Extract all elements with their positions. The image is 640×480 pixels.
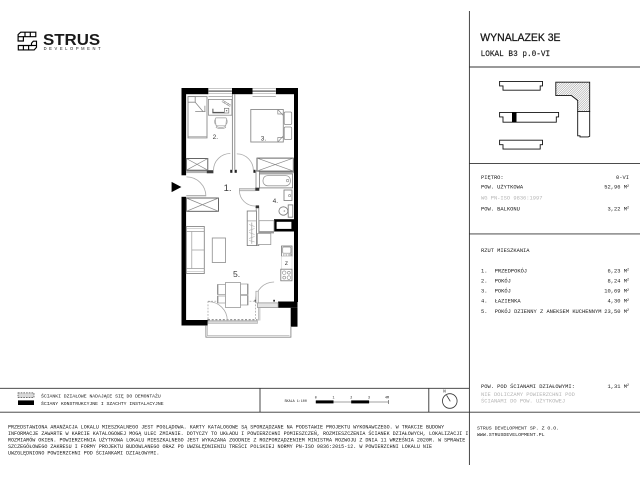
svg-text:ŚCIANKI DZIAŁOWE NADAJĄCE SIĘ: ŚCIANKI DZIAŁOWE NADAJĄCE SIĘ DO DEMONTA… (41, 392, 161, 399)
svg-text:POW. POD ŚCIANAMI DZIAŁOWYMI:: POW. POD ŚCIANAMI DZIAŁOWYMI: (481, 383, 575, 390)
svg-text:2.: 2. (213, 134, 219, 141)
svg-text:3,22 M2: 3,22 M2 (608, 207, 629, 213)
svg-text:ŚCIANAMI DO POW. UŻYTKOWEJ: ŚCIANAMI DO POW. UŻYTKOWEJ (481, 397, 565, 404)
svg-text:3.: 3. (481, 289, 487, 295)
svg-text:1: 1 (333, 396, 335, 400)
svg-text:5.: 5. (233, 269, 240, 279)
svg-text:WWW.STRUSDEVELOPMENT.PL: WWW.STRUSDEVELOPMENT.PL (477, 432, 545, 438)
svg-text:ŁAZIENKA: ŁAZIENKA (495, 299, 522, 305)
svg-text:LOKAL B3 p.0-VI: LOKAL B3 p.0-VI (481, 51, 551, 59)
svg-text:WYNALAZEK 3E: WYNALAZEK 3E (480, 32, 560, 44)
svg-text:4,30 M2: 4,30 M2 (608, 299, 629, 305)
svg-text:NIE DOLICZAMY POWIERZCHNI POD: NIE DOLICZAMY POWIERZCHNI POD (481, 392, 575, 398)
svg-text:POW. BALKONU: POW. BALKONU (481, 207, 520, 213)
svg-text:PRZEDPOKÓJ: PRZEDPOKÓJ (495, 267, 527, 274)
svg-text:3.: 3. (261, 135, 267, 142)
svg-text:ROZMIARÓW OKIEN. POWIERZCHNIA: ROZMIARÓW OKIEN. POWIERZCHNIA UŻYTKOWA L… (8, 437, 465, 444)
svg-text:UWZGLĘDNIONO POWIERZCHNI POD Ś: UWZGLĘDNIONO POWIERZCHNI POD ŚCIANKAMI D… (8, 450, 159, 457)
svg-text:SZCZEGÓŁOWEGO ZAKRESU I FORMY: SZCZEGÓŁOWEGO ZAKRESU I FORMY PROJEKTU B… (8, 443, 432, 450)
svg-text:STRUS DEVELOPMENT SP. Z O.O.: STRUS DEVELOPMENT SP. Z O.O. (477, 426, 559, 432)
svg-text:N: N (443, 390, 446, 394)
svg-text:4.: 4. (481, 299, 487, 305)
svg-text:POW. UŻYTKOWA: POW. UŻYTKOWA (481, 184, 524, 191)
svg-text:0-VI: 0-VI (616, 175, 629, 181)
svg-text:POKÓJ DZIENNY Z ANEKSEM KUCHEN: POKÓJ DZIENNY Z ANEKSEM KUCHENNYM (495, 308, 602, 315)
svg-text:4.: 4. (273, 198, 279, 205)
svg-text:1.: 1. (224, 183, 232, 194)
svg-text:5.: 5. (481, 309, 487, 315)
svg-text:POKÓJ: POKÓJ (495, 278, 511, 285)
svg-text:1,31 M2: 1,31 M2 (608, 384, 629, 390)
svg-text:4M: 4M (385, 396, 389, 400)
svg-text:0: 0 (315, 396, 317, 400)
svg-text:23,50 M2: 23,50 M2 (604, 309, 629, 315)
svg-text:1.: 1. (481, 268, 487, 274)
svg-text:SKALA 1:100: SKALA 1:100 (285, 400, 307, 404)
svg-text:POKÓJ: POKÓJ (495, 288, 511, 295)
svg-text:10,69 M2: 10,69 M2 (604, 289, 629, 295)
svg-text:2: 2 (350, 396, 352, 400)
svg-text:52,96 M2: 52,96 M2 (604, 185, 629, 191)
svg-text:3: 3 (368, 396, 370, 400)
svg-text:2.: 2. (481, 279, 487, 285)
svg-text:WG PN-ISO 9836:1997: WG PN-ISO 9836:1997 (481, 195, 542, 201)
svg-text:RZUT MIESZKANIA: RZUT MIESZKANIA (481, 248, 530, 254)
svg-text:6,23 M2: 6,23 M2 (608, 268, 629, 274)
svg-text:INFORMACJE ZAWARTE W KARCIE KA: INFORMACJE ZAWARTE W KARCIE KATALOGOWEJ … (8, 430, 468, 437)
svg-text:Z: Z (285, 261, 288, 267)
svg-text:ŚCIANY KONSTRUKCYJNE I SZACHTY: ŚCIANY KONSTRUKCYJNE I SZACHTY INSTALACY… (41, 400, 164, 407)
svg-text:PRZEDSTAWIONA ARANŻACJA LOKALU: PRZEDSTAWIONA ARANŻACJA LOKALU MIESZKALN… (8, 424, 444, 431)
svg-text:8,24 M2: 8,24 M2 (608, 279, 629, 285)
svg-text:PIĘTRO:: PIĘTRO: (481, 175, 504, 181)
